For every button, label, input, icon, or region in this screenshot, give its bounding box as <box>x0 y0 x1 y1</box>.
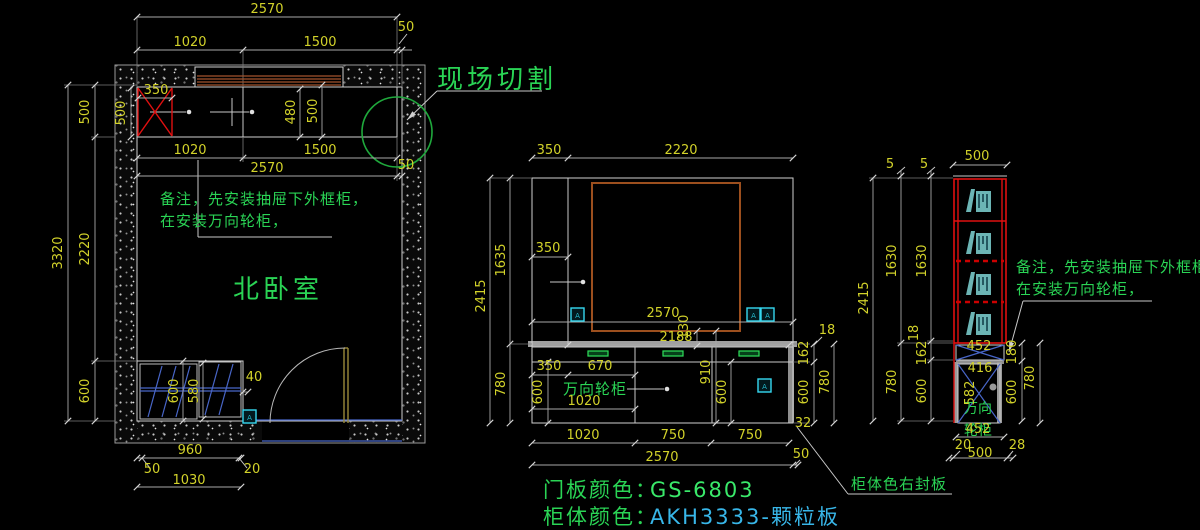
dim-label: 2570 <box>250 2 283 17</box>
leader-dot <box>250 110 255 115</box>
dim-label: 1635 <box>494 243 509 276</box>
dim-label: 2415 <box>474 279 489 312</box>
dim-label: 50 <box>793 447 810 462</box>
dim-label: 1630 <box>915 244 930 277</box>
dim-label: 1500 <box>303 35 336 50</box>
dim-label: 2188 <box>659 330 692 345</box>
dim-label: 582 <box>963 381 978 406</box>
dim-label: 50 <box>398 20 415 35</box>
dim-label: 2570 <box>646 306 679 321</box>
dim-label: 1630 <box>885 244 900 277</box>
dim-label: 600 <box>797 380 812 405</box>
gray-line <box>814 337 822 345</box>
dim-label: 960 <box>178 443 203 458</box>
plan-note-line2: 在安装万向轮柜， <box>160 212 288 230</box>
dim-label: 1020 <box>567 394 600 409</box>
dim-label: 500 <box>306 99 321 124</box>
cad-canvas: AAAAA 现场切割 北卧室 备注，先安装抽屉下外框柜， 在安装万向轮柜， 备注… <box>0 0 1200 530</box>
dim-label: 1020 <box>173 35 206 50</box>
side-note-line1: 备注，先安装抽屉下外框柜， <box>1016 258 1200 276</box>
dim-label: 162 <box>915 341 930 366</box>
dim-label: 910 <box>699 360 714 385</box>
dim-label: 452 <box>966 422 991 437</box>
door-color-value: GS-6803 <box>650 478 755 502</box>
dim-label: 600 <box>531 380 546 405</box>
marker-a-glyph: A <box>765 312 770 320</box>
door-color-label: 门板颜色： <box>543 478 658 502</box>
field-cut-label: 现场切割 <box>437 65 557 95</box>
dim-label: 750 <box>738 428 763 443</box>
dim-label: 2220 <box>78 232 93 265</box>
dim-label: 180 <box>1005 340 1020 365</box>
dim-label: 162 <box>797 341 812 366</box>
dim-label: 600 <box>1005 380 1020 405</box>
panel-fill <box>195 67 343 87</box>
dim-label: 2570 <box>645 450 678 465</box>
dim-label: 780 <box>885 370 900 395</box>
dim-label: 780 <box>818 370 833 395</box>
dim-label: 670 <box>588 359 613 374</box>
dim-label: 2220 <box>664 143 697 158</box>
dim-label: 500 <box>114 101 129 126</box>
dim-label: 600 <box>167 379 182 404</box>
clothes-icon <box>966 189 991 212</box>
dim-label: 20 <box>244 462 261 477</box>
dim-label: 480 <box>284 100 299 125</box>
marker-a-glyph: A <box>575 312 580 320</box>
dim-label: 500 <box>965 149 990 164</box>
marker-a-glyph: A <box>247 414 252 422</box>
clothes-icon <box>966 231 991 254</box>
room-name-label: 北卧室 <box>233 275 323 305</box>
outline <box>199 362 241 417</box>
dim-label: 580 <box>187 379 202 404</box>
plan-note-line1: 备注，先安装抽屉下外框柜， <box>160 190 368 208</box>
dim-label: 40 <box>246 370 263 385</box>
dim-label: 1030 <box>172 473 205 488</box>
dim-label: 2570 <box>250 161 283 176</box>
dim-label: 18 <box>819 323 836 338</box>
dim-label: 452 <box>967 339 992 354</box>
body-color-label: 柜体颜色： <box>543 505 658 529</box>
clothes-icon <box>966 312 991 335</box>
dim-label: 1020 <box>566 428 599 443</box>
dim-label: 5 <box>920 157 928 172</box>
dim-label: 500 <box>78 100 93 125</box>
dim-label: 5 <box>886 157 894 172</box>
leader-dot <box>581 280 586 285</box>
dim-label: 1020 <box>173 143 206 158</box>
dim-label: 600 <box>715 380 730 405</box>
dim-label: 32 <box>795 416 812 431</box>
dim-label: 350 <box>144 83 169 98</box>
blue-line <box>219 364 233 415</box>
dim-label: 50 <box>144 462 161 477</box>
dim-label: 350 <box>537 359 562 374</box>
gray-line <box>399 34 407 44</box>
drawer-handle <box>739 351 759 356</box>
dim-label: 1500 <box>303 143 336 158</box>
dim-label: 350 <box>537 143 562 158</box>
dim-label: 350 <box>536 241 561 256</box>
dim-label: 3320 <box>51 236 66 269</box>
drawer-handle <box>663 351 683 356</box>
dim-label: 600 <box>915 379 930 404</box>
door-swing-arc <box>270 348 345 423</box>
dim-label: 500 <box>968 446 993 461</box>
right-seal-label: 柜体色右封板 <box>851 475 947 493</box>
dim-label: 750 <box>661 428 686 443</box>
marker-a-glyph: A <box>751 312 756 320</box>
dim-label: 2415 <box>857 281 872 314</box>
dim-label: 416 <box>968 361 993 376</box>
dim-label: 28 <box>1009 438 1026 453</box>
dim-label: 600 <box>78 379 93 404</box>
cad-drawing: AAAAA 现场切割 北卧室 备注，先安装抽屉下外框柜， 在安装万向轮柜， 备注… <box>0 0 1200 530</box>
dim-label: 18 <box>907 325 922 342</box>
dim-label: 780 <box>494 372 509 397</box>
dim-label: 780 <box>1023 366 1038 391</box>
drawer-handle <box>588 351 608 356</box>
leader-dot <box>665 387 670 392</box>
clothes-icon <box>966 272 991 295</box>
side-note-line2: 在安装万向轮柜， <box>1016 280 1144 298</box>
leader-dot <box>187 110 192 115</box>
caster-dot <box>990 384 997 391</box>
dim-label: 50 <box>398 158 415 173</box>
blue-line <box>205 364 219 415</box>
body-color-value: AKH3333-颗粒板 <box>650 505 840 529</box>
marker-a-glyph: A <box>762 383 767 391</box>
